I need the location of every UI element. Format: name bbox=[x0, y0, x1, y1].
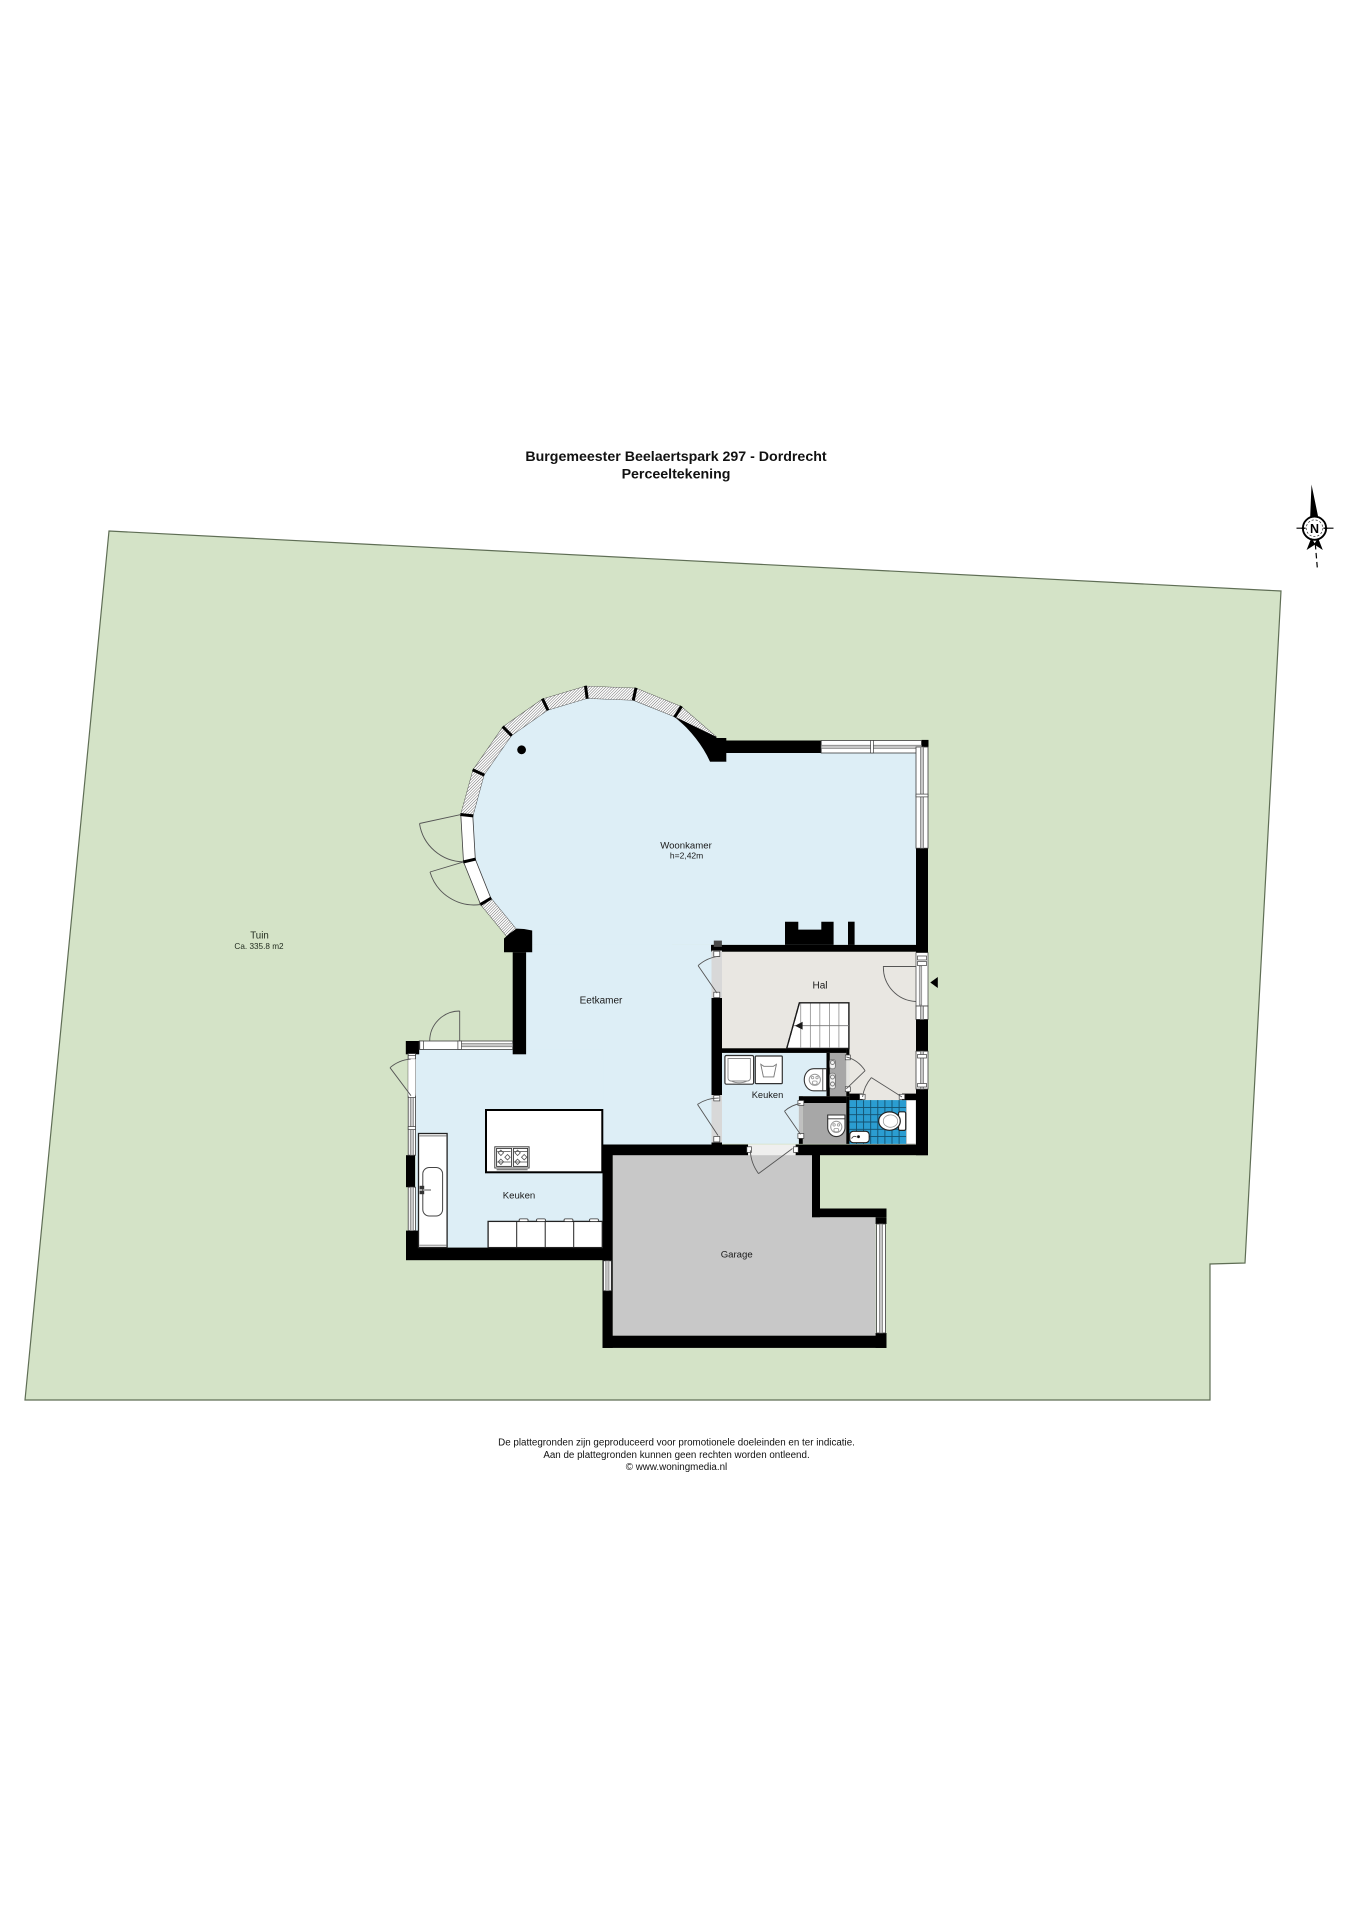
svg-text:Garage: Garage bbox=[721, 1250, 753, 1261]
svg-text:Eetkamer: Eetkamer bbox=[580, 996, 623, 1007]
svg-text:Burgemeester Beelaertspark 297: Burgemeester Beelaertspark 297 - Dordrec… bbox=[525, 449, 826, 465]
svg-text:© www.woningmedia.nl: © www.woningmedia.nl bbox=[626, 1462, 727, 1473]
svg-text:Keuken: Keuken bbox=[752, 1090, 784, 1100]
svg-text:N: N bbox=[1310, 522, 1319, 536]
svg-text:Keuken: Keuken bbox=[503, 1191, 536, 1202]
svg-text:Aan de plattegronden kunnen ge: Aan de plattegronden kunnen geen rechten… bbox=[543, 1450, 809, 1461]
svg-text:Ca. 335.8 m2: Ca. 335.8 m2 bbox=[234, 942, 284, 951]
svg-text:Hal: Hal bbox=[812, 981, 827, 992]
svg-text:De plattegronden zijn geproduc: De plattegronden zijn geproduceerd voor … bbox=[498, 1438, 855, 1449]
svg-text:h=2,42m: h=2,42m bbox=[670, 851, 703, 861]
svg-text:Perceeltekening: Perceeltekening bbox=[622, 467, 731, 483]
svg-text:Tuin: Tuin bbox=[250, 931, 269, 942]
